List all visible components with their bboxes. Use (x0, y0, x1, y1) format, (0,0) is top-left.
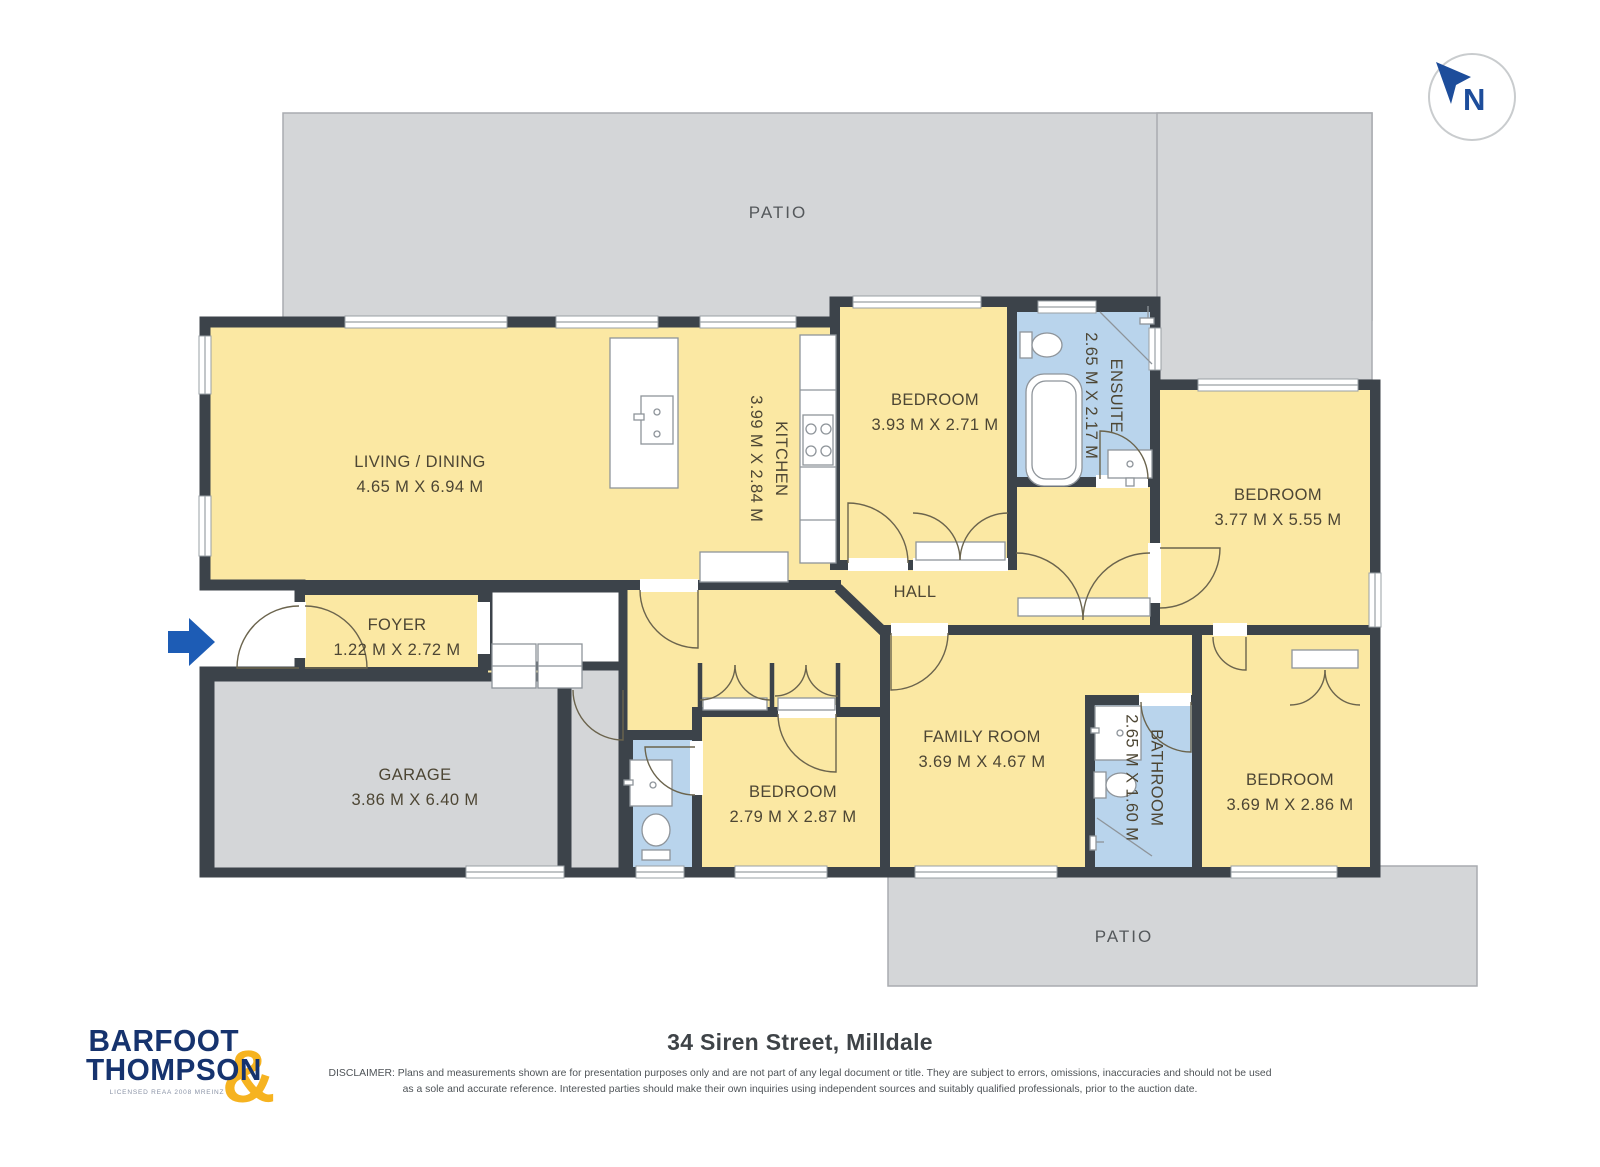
room-label-ensuite: ENSUITE 2.65 M X 2.17 M (1078, 306, 1128, 486)
room-label-kitchen: KITCHEN 3.99 M X 2.84 M (743, 364, 793, 554)
wc-toilet-icon (642, 814, 670, 860)
kitchen-island-icon (610, 338, 678, 488)
utility-strip-area (567, 662, 623, 872)
room-label-patio-bottom: PATIO (1044, 924, 1204, 950)
floor-plan: N PATIO PATIO LIVING / DINING 4.65 M X 6… (0, 0, 1600, 1167)
compass-n-label: N (1463, 82, 1485, 117)
wardrobe-shelf-bedroom-br (1292, 650, 1358, 668)
room-label-bathroom: BATHROOM 2.65 M X 1.60 M (1119, 685, 1169, 870)
page-title: 34 Siren Street, Milldale (0, 1029, 1600, 1056)
disclaimer-line-2: as a sole and accurate reference. Intere… (0, 1082, 1600, 1098)
room-label-patio-top: PATIO (698, 200, 858, 226)
room-label-bedroom-mid: BEDROOM 2.79 M X 2.87 M (683, 780, 903, 830)
floor-plan-svg: N (0, 0, 1600, 1167)
room-label-living-dining: LIVING / DINING 4.65 M X 6.94 M (310, 450, 530, 500)
room-label-hall: HALL (855, 580, 975, 605)
room-label-bedroom-bottom-right: BEDROOM 3.69 M X 2.86 M (1180, 768, 1400, 818)
room-label-bedroom-top: BEDROOM 3.93 M X 2.71 M (825, 388, 1045, 438)
closet-shelf-2 (778, 698, 835, 710)
closet-shelf-1 (703, 698, 767, 710)
entry-arrow-icon (168, 618, 215, 666)
kitchen-bench-icon (700, 552, 788, 582)
wc-sink-icon (624, 760, 672, 806)
room-label-family-room: FAMILY ROOM 3.69 M X 4.67 M (872, 725, 1092, 775)
disclaimer-text: DISCLAIMER: Plans and measurements shown… (0, 1066, 1600, 1098)
room-label-foyer: FOYER 1.22 M X 2.72 M (287, 613, 507, 663)
compass: N (1429, 54, 1515, 140)
floor-plan-page: { "compass": { "label": "N" }, "plan": {… (0, 0, 1600, 1167)
room-label-bedroom-right: BEDROOM 3.77 M X 5.55 M (1168, 483, 1388, 533)
patio-top-right-area (1157, 113, 1372, 380)
ensuite-toilet-icon (1020, 332, 1062, 358)
disclaimer-line-1: DISCLAIMER: Plans and measurements shown… (0, 1066, 1600, 1082)
room-label-garage: GARAGE 3.86 M X 6.40 M (305, 763, 525, 813)
